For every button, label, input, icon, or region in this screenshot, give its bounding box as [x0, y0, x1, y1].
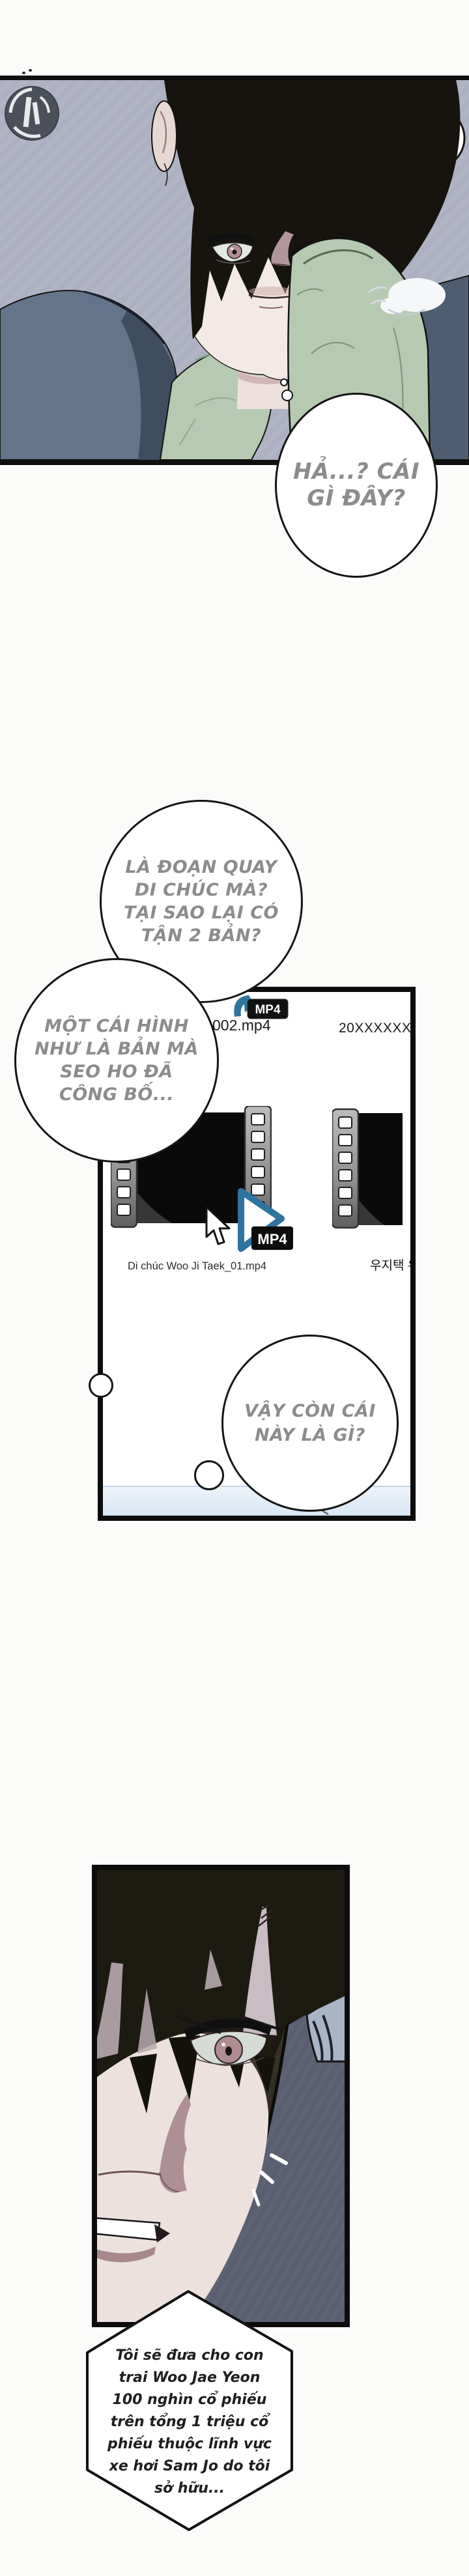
dialogue-line: CÔNG BỐ... — [59, 1083, 174, 1106]
dialogue-line: phiếu thuộc lĩnh vực — [87, 2433, 292, 2456]
cursor-icon — [205, 1206, 236, 1247]
dialogue-line: Tôi sẽ đưa cho con — [87, 2345, 292, 2367]
thought-trail-circle — [282, 390, 292, 401]
mp4-badge-label: MP4 — [255, 1003, 281, 1017]
panel3-artwork — [92, 1865, 350, 2327]
dialogue-line: SEO HO ĐÃ — [60, 1060, 173, 1083]
artist-seal-icon — [5, 87, 59, 140]
dialogue-line: NHƯ LÀ BẢN MÀ — [35, 1038, 199, 1060]
dialogue-line: NÀY LÀ GÌ? — [255, 1423, 365, 1447]
file2-name: 20XXXXXXX — [339, 1021, 410, 1036]
video-thumbnail-right — [332, 1108, 403, 1229]
file1-name: 002.mp4 — [212, 1017, 271, 1034]
korean-caption: 우지택 유 — [370, 1256, 410, 1273]
ink-speck — [29, 69, 32, 72]
panel1-artwork — [0, 80, 469, 460]
dialogue-line: VẬY CÒN CÁI — [244, 1399, 376, 1423]
dialogue-line: DI CHÚC MÀ? — [135, 879, 268, 901]
dialogue-line: trên tổng 1 triệu cổ — [87, 2411, 292, 2433]
dialogue-line: 100 nghìn cổ phiếu — [87, 2389, 292, 2411]
thought-trail-circle — [89, 1373, 113, 1398]
webtoon-page: HẢ...? CÁI GÌ ĐÂY? MP4 002.mp4 20XXXXXXX — [0, 0, 469, 2576]
dialogue-line: GÌ ĐÂY? — [307, 485, 405, 512]
selected-file-name: Di chúc Woo Ji Taek_01.mp4 — [128, 1260, 266, 1273]
thought-bubble-what-is: VẬY CÒN CÁI NÀY LÀ GÌ? — [221, 1335, 399, 1512]
dialogue-line: MỘT CÁI HÌNH — [44, 1015, 189, 1038]
ink-speck — [22, 72, 25, 74]
thought-trail-circle — [281, 379, 287, 386]
thought-bubble-published: MỘT CÁI HÌNH NHƯ LÀ BẢN MÀ SEO HO ĐÃ CÔN… — [14, 958, 219, 1163]
lips — [249, 287, 293, 296]
dialogue-line: sở hữu... — [87, 2478, 292, 2500]
thought-trail-circle — [194, 1460, 224, 1490]
quote-text: Tôi sẽ đưa cho con trai Woo Jae Yeon 100… — [87, 2345, 292, 2500]
ear — [152, 101, 177, 171]
panel1-top-border — [0, 76, 469, 80]
dialogue-line: xe hơi Sam Jo do tôi — [87, 2456, 292, 2478]
dialogue-line: TẠI SAO LẠI CÓ — [124, 901, 279, 924]
thought-bubble-huh: HẢ...? CÁI GÌ ĐÂY? — [275, 393, 438, 578]
dialogue-line: trai Woo Jae Yeon — [87, 2367, 292, 2389]
dialogue-line: TẬN 2 BẢN? — [141, 924, 261, 947]
mp4-badge-label: MP4 — [257, 1231, 287, 1247]
dialogue-line: HẢ...? CÁI — [293, 459, 419, 485]
dialogue-line: LÀ ĐOẠN QUAY — [125, 856, 277, 879]
selected-mp4-icon: MP4 — [232, 1187, 294, 1255]
